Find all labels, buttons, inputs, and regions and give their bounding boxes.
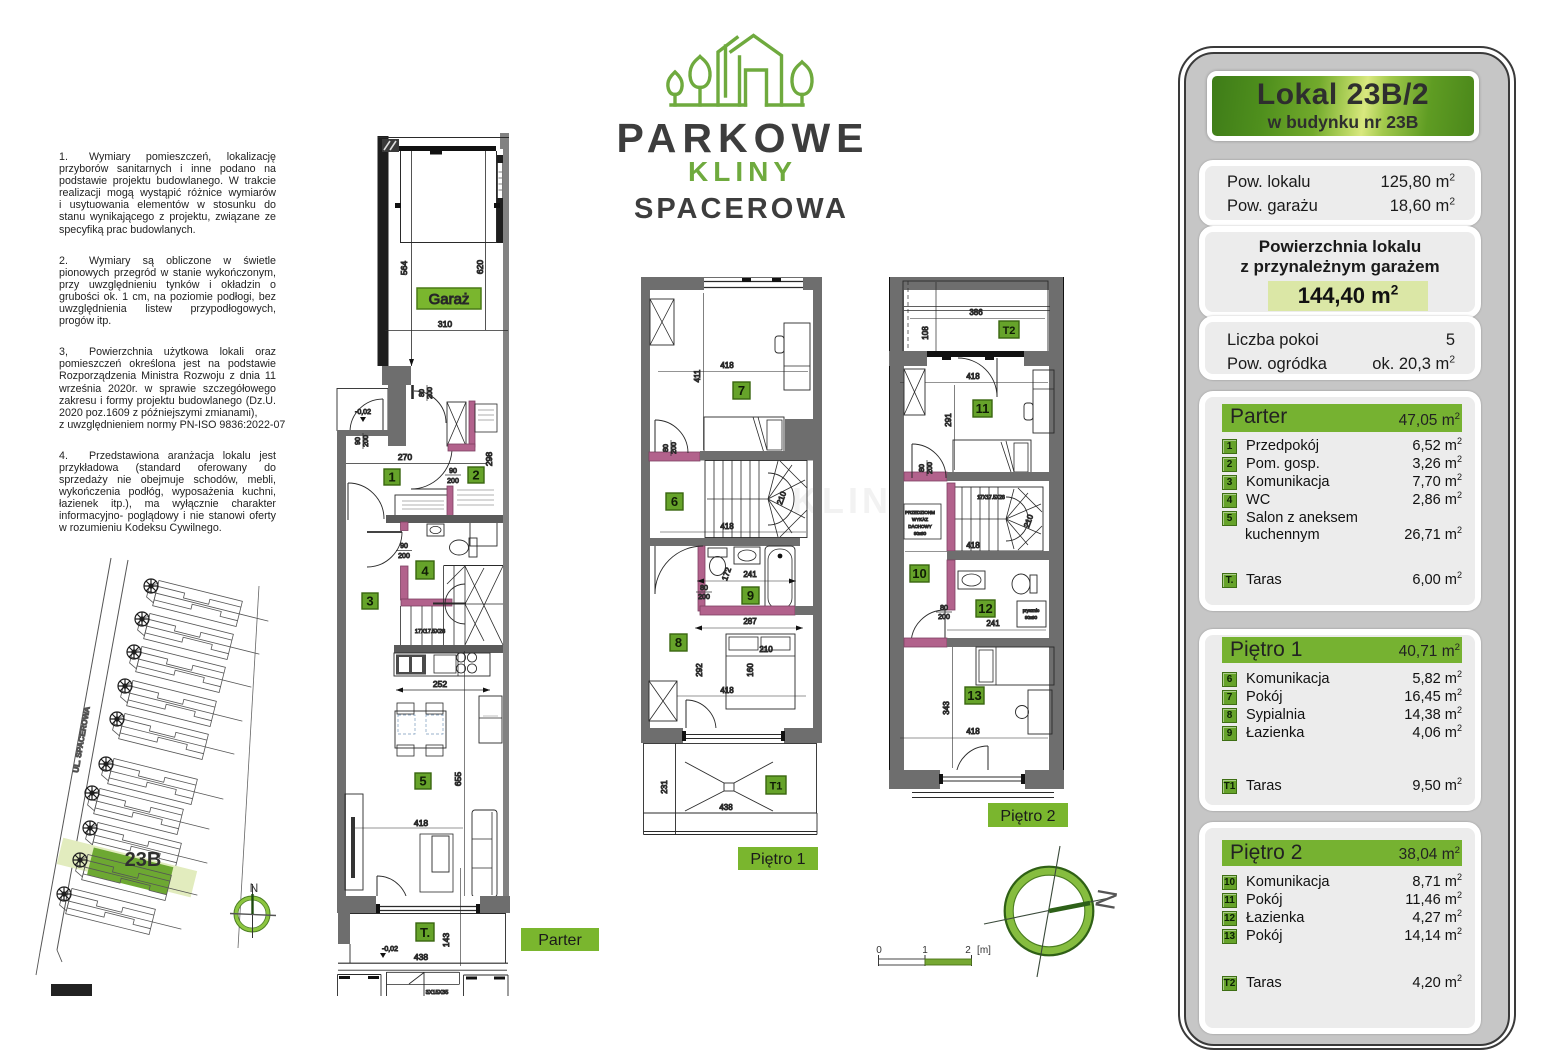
svg-text:90x90: 90x90 <box>1025 615 1038 620</box>
svg-text:438: 438 <box>414 952 428 962</box>
svg-text:10: 10 <box>912 566 926 581</box>
svg-text:80: 80 <box>663 444 670 452</box>
svg-text:2: 2 <box>472 468 479 483</box>
svg-text:200: 200 <box>671 442 678 454</box>
svg-text:418: 418 <box>966 727 980 736</box>
svg-text:-0,02: -0,02 <box>355 409 371 416</box>
svg-text:200: 200 <box>927 462 934 474</box>
svg-text:108: 108 <box>921 326 930 340</box>
svg-text:17X17.5X28: 17X17.5X28 <box>415 629 445 635</box>
svg-text:6: 6 <box>671 494 678 509</box>
svg-text:241: 241 <box>743 570 757 579</box>
svg-text:prysznic: prysznic <box>1023 608 1040 613</box>
svg-text:386: 386 <box>969 308 983 317</box>
svg-text:292: 292 <box>695 663 704 677</box>
svg-text:343: 343 <box>942 701 951 715</box>
svg-text:210: 210 <box>759 645 773 654</box>
svg-text:298: 298 <box>484 452 494 466</box>
svg-text:200: 200 <box>427 387 434 399</box>
svg-text:UL. SPACEROWA: UL. SPACEROWA <box>71 706 92 774</box>
svg-text:4: 4 <box>421 564 429 579</box>
svg-text:418: 418 <box>720 361 734 370</box>
svg-text:T2: T2 <box>1003 325 1016 337</box>
svg-text:13: 13 <box>967 688 981 703</box>
svg-text:200: 200 <box>398 553 410 560</box>
svg-text:2: 2 <box>965 945 971 956</box>
svg-text:80: 80 <box>700 585 708 592</box>
svg-text:200: 200 <box>938 614 950 621</box>
svg-text:-0,02: -0,02 <box>382 946 398 953</box>
svg-text:418: 418 <box>720 686 734 695</box>
svg-text:241: 241 <box>986 619 1000 628</box>
svg-text:655: 655 <box>453 772 463 786</box>
svg-text:3X15X35: 3X15X35 <box>426 990 449 996</box>
svg-text:T.: T. <box>420 925 430 940</box>
svg-text:3: 3 <box>366 594 373 609</box>
svg-text:310: 310 <box>438 319 452 329</box>
svg-text:143: 143 <box>441 933 451 947</box>
svg-text:T1: T1 <box>770 781 783 793</box>
svg-text:252: 252 <box>433 679 447 689</box>
svg-text:[m]: [m] <box>977 945 991 956</box>
svg-text:418: 418 <box>720 522 734 531</box>
svg-text:7: 7 <box>738 383 745 398</box>
svg-text:Piętro 2: Piętro 2 <box>1000 808 1055 825</box>
svg-text:270: 270 <box>398 452 412 462</box>
svg-text:418: 418 <box>966 541 980 550</box>
svg-text:Piętro 1: Piętro 1 <box>750 851 805 868</box>
svg-text:90: 90 <box>355 437 362 445</box>
svg-text:200: 200 <box>698 594 710 601</box>
svg-text:0: 0 <box>876 945 882 956</box>
svg-text:90: 90 <box>400 543 408 550</box>
svg-text:DACHOWY: DACHOWY <box>908 524 932 529</box>
svg-text:90x80: 90x80 <box>914 531 927 536</box>
svg-text:17X17.5X28: 17X17.5X28 <box>977 495 1005 501</box>
svg-text:1: 1 <box>922 945 928 956</box>
svg-text:80: 80 <box>419 389 426 397</box>
svg-text:200: 200 <box>363 435 370 447</box>
svg-text:80: 80 <box>940 605 948 612</box>
svg-text:210: 210 <box>1022 513 1035 529</box>
svg-text:12: 12 <box>978 601 992 616</box>
svg-text:WYKAZ: WYKAZ <box>912 517 928 522</box>
svg-text:231: 231 <box>660 780 669 794</box>
svg-text:1: 1 <box>388 470 395 485</box>
svg-text:291: 291 <box>944 413 953 427</box>
svg-text:80: 80 <box>919 464 926 472</box>
svg-text:200: 200 <box>447 478 459 485</box>
svg-text:210: 210 <box>775 490 788 506</box>
svg-text:418: 418 <box>414 818 428 828</box>
svg-text:411: 411 <box>693 369 702 382</box>
svg-text:90: 90 <box>449 468 457 475</box>
svg-text:438: 438 <box>719 803 733 812</box>
svg-text:23B: 23B <box>125 849 162 871</box>
svg-text:Garaż: Garaż <box>429 291 470 308</box>
svg-text:N: N <box>250 881 259 895</box>
svg-text:9: 9 <box>747 588 754 603</box>
svg-text:160: 160 <box>746 663 755 677</box>
svg-text:Parter: Parter <box>538 932 582 949</box>
svg-text:8: 8 <box>675 635 682 650</box>
svg-text:287: 287 <box>743 617 757 626</box>
svg-text:5: 5 <box>419 774 426 789</box>
svg-text:11: 11 <box>976 401 990 416</box>
svg-text:620: 620 <box>475 260 485 274</box>
svg-text:172: 172 <box>720 566 733 582</box>
svg-text:418: 418 <box>966 372 980 381</box>
svg-text:PRZEDZIONM: PRZEDZIONM <box>905 510 935 515</box>
svg-text:564: 564 <box>399 261 409 275</box>
